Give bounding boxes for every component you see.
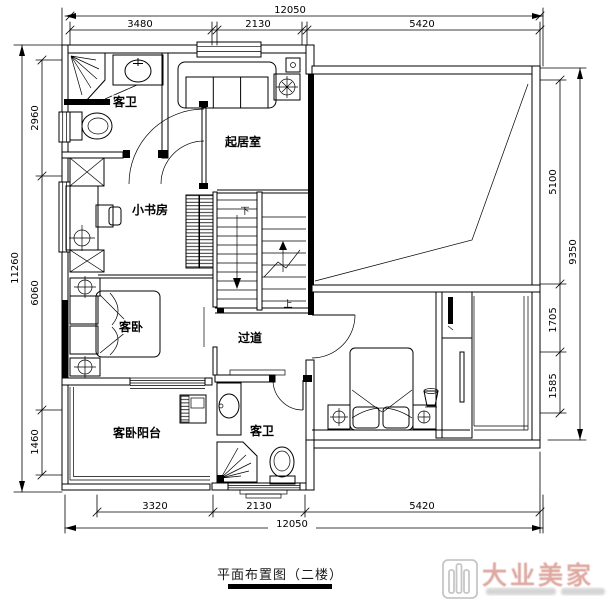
dim-right: 9350 5100 1705 1585 xyxy=(540,68,586,440)
logo-tagline-blur xyxy=(486,588,605,595)
dim-bottom: 3320 2130 5420 12050 xyxy=(65,452,544,533)
bedroom-guest: 客卧 xyxy=(70,276,204,378)
room-label-bedroom-guest: 客卧 xyxy=(118,319,143,334)
sofa-icon xyxy=(178,62,276,108)
door-bedroom-right xyxy=(312,315,355,358)
nightstand3-lamp-icon xyxy=(328,405,350,429)
dim-bottom-overall: 12050 xyxy=(276,519,308,530)
dim-top-seg2: 2130 xyxy=(245,19,270,30)
stairs-up-arrow-icon xyxy=(264,241,300,277)
room-label-balcony: 客卧阳台 xyxy=(112,425,161,440)
sink2-icon xyxy=(217,383,241,435)
bathroom-lower: 客卫 xyxy=(217,383,295,484)
corridor: 过道 xyxy=(230,330,285,375)
closet-icon xyxy=(442,292,472,438)
dim-top-seg1: 3480 xyxy=(127,19,152,30)
window-bedroom-balcony xyxy=(130,378,205,389)
shower2-icon xyxy=(217,442,257,482)
dim-left-seg3: 1460 xyxy=(30,429,41,454)
logo-building-icon xyxy=(443,560,477,598)
window-left-study xyxy=(59,182,70,252)
dim-left-overall: 11260 xyxy=(10,252,21,284)
window-bath-lower xyxy=(228,483,300,498)
wardrobe-xbox2-icon xyxy=(70,250,104,272)
guest-bed-icon xyxy=(70,291,160,357)
outer-walls xyxy=(62,45,540,490)
wardrobe-xbox-icon xyxy=(70,158,104,186)
sink-icon xyxy=(113,55,163,85)
ceiling-light-icon xyxy=(286,58,300,72)
nightstand-lamp-icon xyxy=(70,276,100,298)
terrace-windows xyxy=(474,296,528,430)
side-table-plant-icon xyxy=(274,74,300,100)
dim-right-seg3: 1585 xyxy=(548,373,559,398)
logo-company-name: 大业美家 xyxy=(482,561,594,590)
window-left-bath xyxy=(59,112,70,142)
window-top-living xyxy=(197,42,261,57)
stairs-down-label: 下 xyxy=(240,207,249,217)
dim-bottom-seg2: 2130 xyxy=(246,501,271,512)
title-block: 平面布置图（二楼） xyxy=(217,568,343,589)
stairs-up-label: 上 xyxy=(283,299,292,310)
nightstand-lamp2-icon xyxy=(70,356,100,378)
void-area xyxy=(315,84,528,281)
dim-left-seg1: 2960 xyxy=(30,105,41,130)
study: 小书房 xyxy=(66,158,213,272)
balcony-cabinet-icon xyxy=(180,395,206,423)
stairs: 下 上 xyxy=(217,192,306,310)
dim-left: 11260 2960 6060 1460 xyxy=(10,45,62,492)
dim-right-overall: 9350 xyxy=(568,239,579,264)
room-label-bath-upper: 客卫 xyxy=(112,94,137,109)
title-underline xyxy=(228,584,332,589)
desk-chair-icon xyxy=(96,205,121,227)
toilet2-icon xyxy=(270,447,295,484)
dim-top-overall: 12050 xyxy=(274,5,306,16)
dim-left-seg2: 6060 xyxy=(30,280,41,305)
dimensions: 12050 3480 2130 5420 11260 2960 6060 146… xyxy=(10,5,586,533)
toilet-icon xyxy=(70,112,112,140)
nightstand4-lamp-icon xyxy=(413,405,436,429)
bedroom-right xyxy=(328,292,472,438)
balcony: 客卧阳台 xyxy=(112,395,206,440)
room-label-study: 小书房 xyxy=(132,202,168,217)
logo: 大业美家 xyxy=(443,560,605,598)
dim-top-seg3: 5420 xyxy=(409,19,434,30)
bed2-icon xyxy=(350,348,413,430)
dim-right-seg2: 1705 xyxy=(548,307,559,332)
dim-bottom-seg1: 3320 xyxy=(142,501,167,512)
floorplan-screenshot: 客卫 起居室 xyxy=(0,0,614,603)
door-bath-lower xyxy=(273,380,303,410)
dim-bottom-seg3: 5420 xyxy=(409,501,434,512)
bookshelf-icon xyxy=(186,195,213,268)
bathroom-upper: 客卫 xyxy=(64,53,163,140)
interior-walls xyxy=(62,53,540,440)
room-label-living: 起居室 xyxy=(224,134,261,149)
room-label-corridor: 过道 xyxy=(238,330,262,345)
drawing-title: 平面布置图（二楼） xyxy=(217,568,343,583)
room-label-bath-lower: 客卫 xyxy=(249,423,274,438)
living-room: 起居室 xyxy=(178,58,300,149)
cabinet-tall xyxy=(66,186,98,251)
dim-top: 12050 3480 2130 5420 xyxy=(62,5,544,66)
stairs-down-arrow-icon xyxy=(233,215,241,289)
dim-right-seg1: 5100 xyxy=(548,169,559,194)
